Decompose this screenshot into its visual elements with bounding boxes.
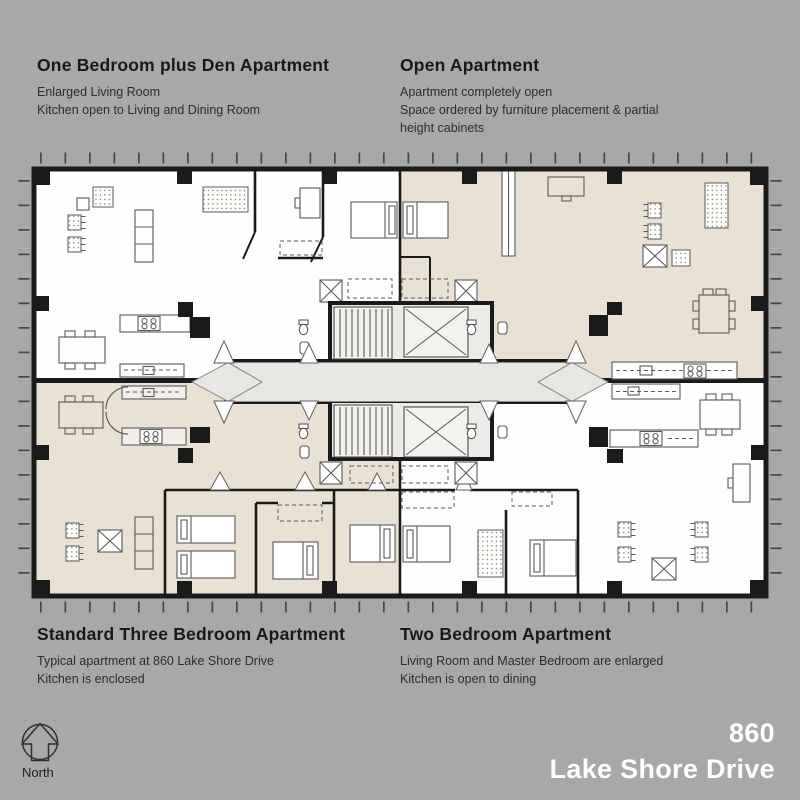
apartment-title: Two Bedroom Apartment (400, 624, 760, 645)
apartment-desc: Living Room and Master Bedroom are enlar… (400, 653, 760, 689)
apartment-title: One Bedroom plus Den Apartment (37, 55, 397, 76)
toilet-icon (299, 320, 308, 335)
two-bedroom-label: Two Bedroom Apartment Living Room and Ma… (400, 624, 760, 689)
stairs-icon (334, 405, 392, 457)
apartment-title: Standard Three Bedroom Apartment (37, 624, 397, 645)
building-title: 860 Lake Shore Drive (550, 716, 775, 788)
sink-icon (300, 446, 309, 458)
apartment-desc: Apartment completely open Space ordered … (400, 84, 760, 137)
one-bedroom-den-label: One Bedroom plus Den Apartment Enlarged … (37, 55, 397, 120)
three-bedroom-label: Standard Three Bedroom Apartment Typical… (37, 624, 397, 689)
apartment-desc: Enlarged Living Room Kitchen open to Liv… (37, 84, 397, 120)
apartment-title: Open Apartment (400, 55, 760, 76)
sink-icon (498, 426, 507, 438)
north-arrow-icon: North (22, 724, 58, 781)
north-label: North (22, 765, 54, 780)
toilet-icon (467, 424, 476, 439)
page: North One Bedroom plus Den Apartment Enl… (0, 0, 800, 800)
building-number: 860 (550, 716, 775, 752)
sink-icon (498, 322, 507, 334)
toilet-icon (299, 424, 308, 439)
toilet-icon (467, 320, 476, 335)
apartment-desc: Typical apartment at 860 Lake Shore Driv… (37, 653, 397, 689)
building-name: Lake Shore Drive (550, 752, 775, 788)
open-apartment-label: Open Apartment Apartment completely open… (400, 55, 760, 137)
stairs-icon (334, 307, 392, 359)
